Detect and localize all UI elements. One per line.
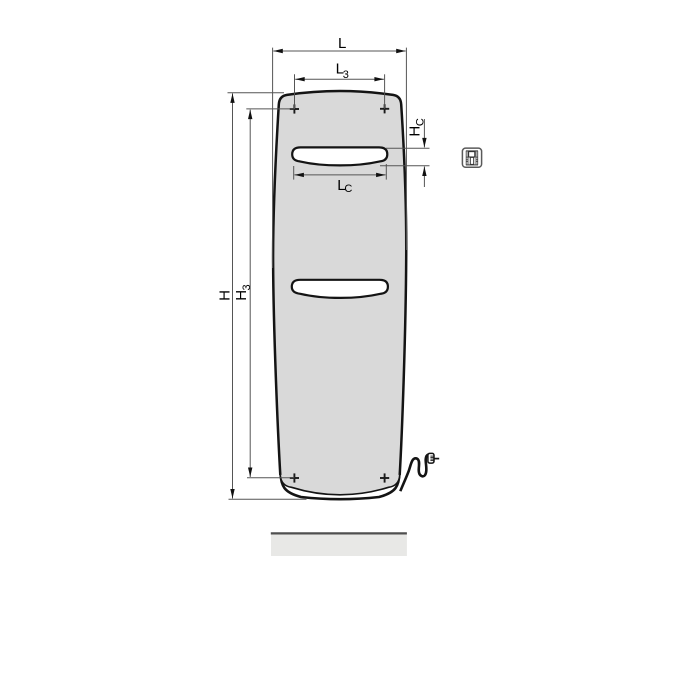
svg-text:3: 3 — [241, 284, 253, 290]
svg-text:C: C — [414, 118, 426, 126]
svg-text:C: C — [344, 183, 352, 195]
svg-text:3: 3 — [343, 69, 349, 81]
svg-text:H: H — [217, 290, 234, 301]
svg-text:H: H — [233, 290, 250, 301]
svg-text:H: H — [406, 126, 423, 137]
svg-text:L: L — [338, 35, 346, 52]
